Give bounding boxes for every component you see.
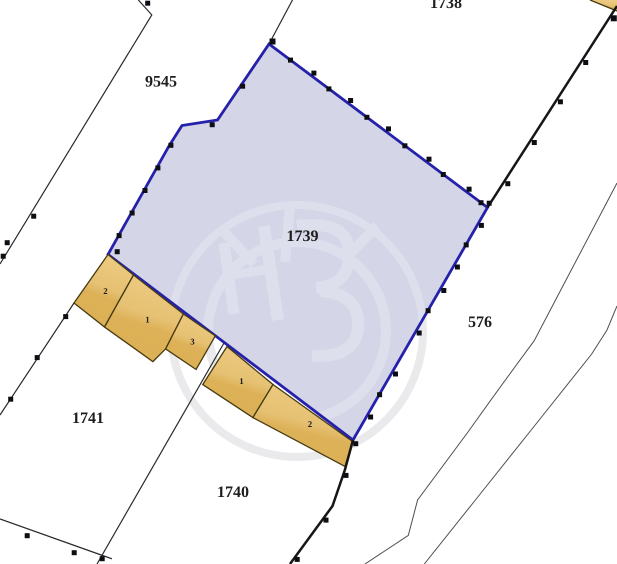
svg-text:2: 2: [103, 286, 108, 296]
svg-text:3: 3: [190, 336, 195, 346]
svg-text:1739: 1739: [286, 228, 318, 245]
svg-text:1740: 1740: [217, 484, 249, 501]
svg-text:1: 1: [239, 376, 243, 386]
svg-text:1741: 1741: [72, 410, 104, 427]
svg-text:2: 2: [308, 419, 313, 429]
svg-text:576: 576: [468, 314, 492, 331]
svg-text:1738: 1738: [430, 0, 462, 12]
svg-text:9545: 9545: [145, 73, 177, 90]
svg-text:1: 1: [145, 314, 149, 324]
